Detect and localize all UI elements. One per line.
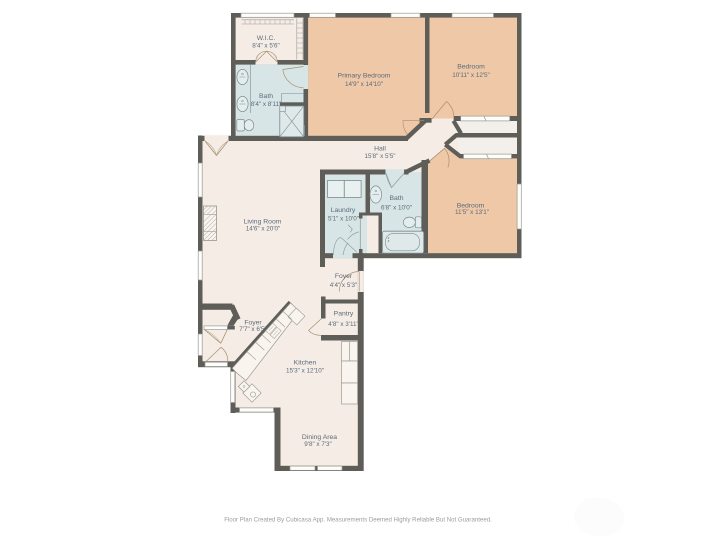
svg-text:Kitchen: Kitchen <box>294 359 317 366</box>
svg-text:9'8" x 7'3": 9'8" x 7'3" <box>304 441 332 448</box>
svg-text:14'9" x 14'10": 14'9" x 14'10" <box>345 81 383 88</box>
svg-text:4'4" x 5'3": 4'4" x 5'3" <box>330 282 358 289</box>
svg-text:Hall: Hall <box>374 146 386 153</box>
svg-text:Dining Area: Dining Area <box>302 434 337 441</box>
svg-text:Bedroom: Bedroom <box>457 63 485 70</box>
svg-text:14'6" x 20'0": 14'6" x 20'0" <box>246 226 281 233</box>
svg-text:Bath: Bath <box>259 93 273 100</box>
svg-text:8'4" x 8'11": 8'4" x 8'11" <box>251 101 282 108</box>
svg-text:15'8" x 5'5": 15'8" x 5'5" <box>364 153 395 160</box>
svg-text:4'8" x 3'11": 4'8" x 3'11" <box>328 321 359 328</box>
svg-text:7'7" x 6'5": 7'7" x 6'5" <box>239 326 267 333</box>
svg-text:Living Room: Living Room <box>244 218 282 225</box>
svg-text:Foyer: Foyer <box>335 273 353 280</box>
svg-text:W.I.C.: W.I.C. <box>257 35 276 42</box>
svg-text:Pantry: Pantry <box>334 311 354 318</box>
svg-text:5'1" x 10'0": 5'1" x 10'0" <box>328 216 359 223</box>
svg-text:Floor Plan Created By Cubicasa: Floor Plan Created By Cubicasa App. Meas… <box>224 517 492 524</box>
svg-text:11'5" x 13'1": 11'5" x 13'1" <box>455 209 489 216</box>
svg-text:10'11" x 12'5": 10'11" x 12'5" <box>452 72 490 79</box>
svg-text:Laundry: Laundry <box>331 207 356 214</box>
svg-text:Primary Bedroom: Primary Bedroom <box>338 72 391 79</box>
svg-text:8'4" x 5'6": 8'4" x 5'6" <box>252 43 280 50</box>
svg-text:15'3" x 12'10": 15'3" x 12'10" <box>286 368 324 375</box>
svg-text:Bath: Bath <box>390 195 404 202</box>
svg-text:6'8" x 10'0": 6'8" x 10'0" <box>381 204 412 211</box>
